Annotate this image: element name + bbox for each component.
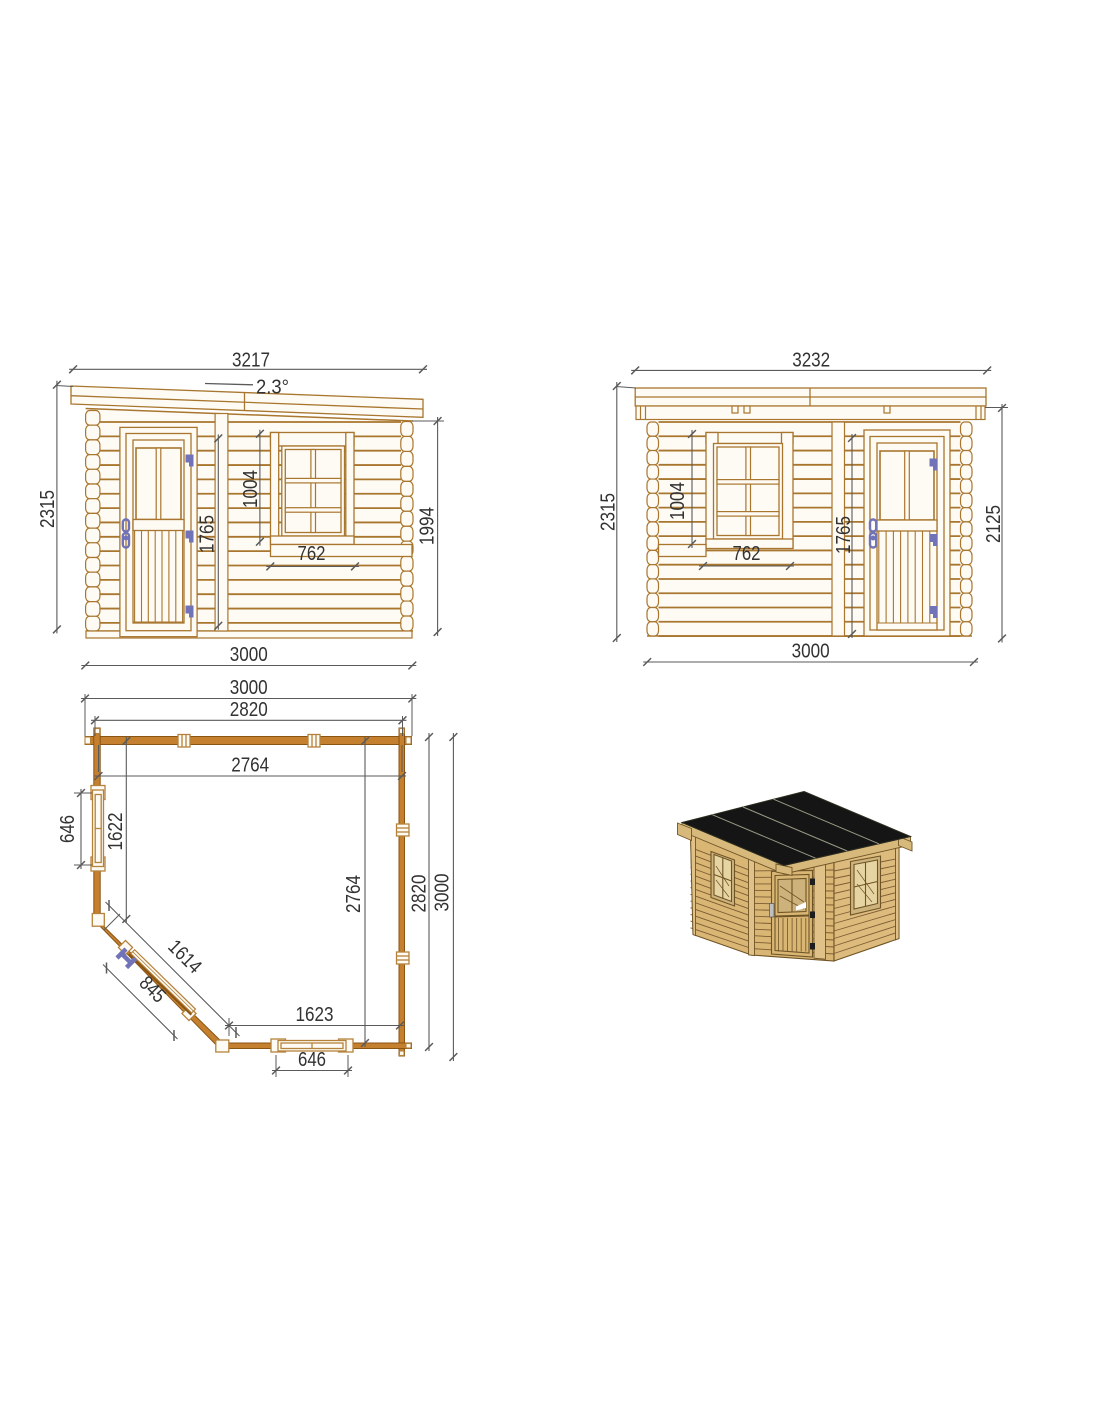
svg-text:1765: 1765 — [196, 515, 218, 553]
svg-text:1622: 1622 — [105, 813, 127, 851]
svg-text:3000: 3000 — [432, 874, 454, 912]
svg-text:2315: 2315 — [598, 493, 620, 531]
svg-text:2820: 2820 — [409, 875, 431, 913]
svg-text:3000: 3000 — [792, 641, 830, 663]
svg-text:2315: 2315 — [37, 490, 59, 528]
svg-text:2764: 2764 — [343, 875, 365, 913]
svg-text:1994: 1994 — [416, 507, 438, 545]
svg-text:762: 762 — [298, 543, 326, 565]
svg-text:1004: 1004 — [240, 470, 262, 508]
svg-text:2125: 2125 — [983, 505, 1005, 543]
svg-text:1004: 1004 — [667, 482, 689, 520]
svg-text:3232: 3232 — [792, 350, 830, 372]
svg-text:2764: 2764 — [231, 755, 269, 777]
svg-text:762: 762 — [733, 543, 761, 565]
svg-text:3217: 3217 — [232, 350, 270, 372]
svg-text:1614: 1614 — [163, 936, 205, 978]
svg-text:2.3°: 2.3° — [256, 377, 289, 399]
svg-text:646: 646 — [57, 815, 79, 843]
svg-text:3000: 3000 — [230, 644, 268, 666]
svg-text:2820: 2820 — [230, 699, 268, 721]
svg-text:1765: 1765 — [833, 516, 855, 554]
svg-text:1623: 1623 — [296, 1004, 334, 1026]
svg-text:646: 646 — [298, 1049, 326, 1071]
svg-text:3000: 3000 — [230, 677, 268, 699]
